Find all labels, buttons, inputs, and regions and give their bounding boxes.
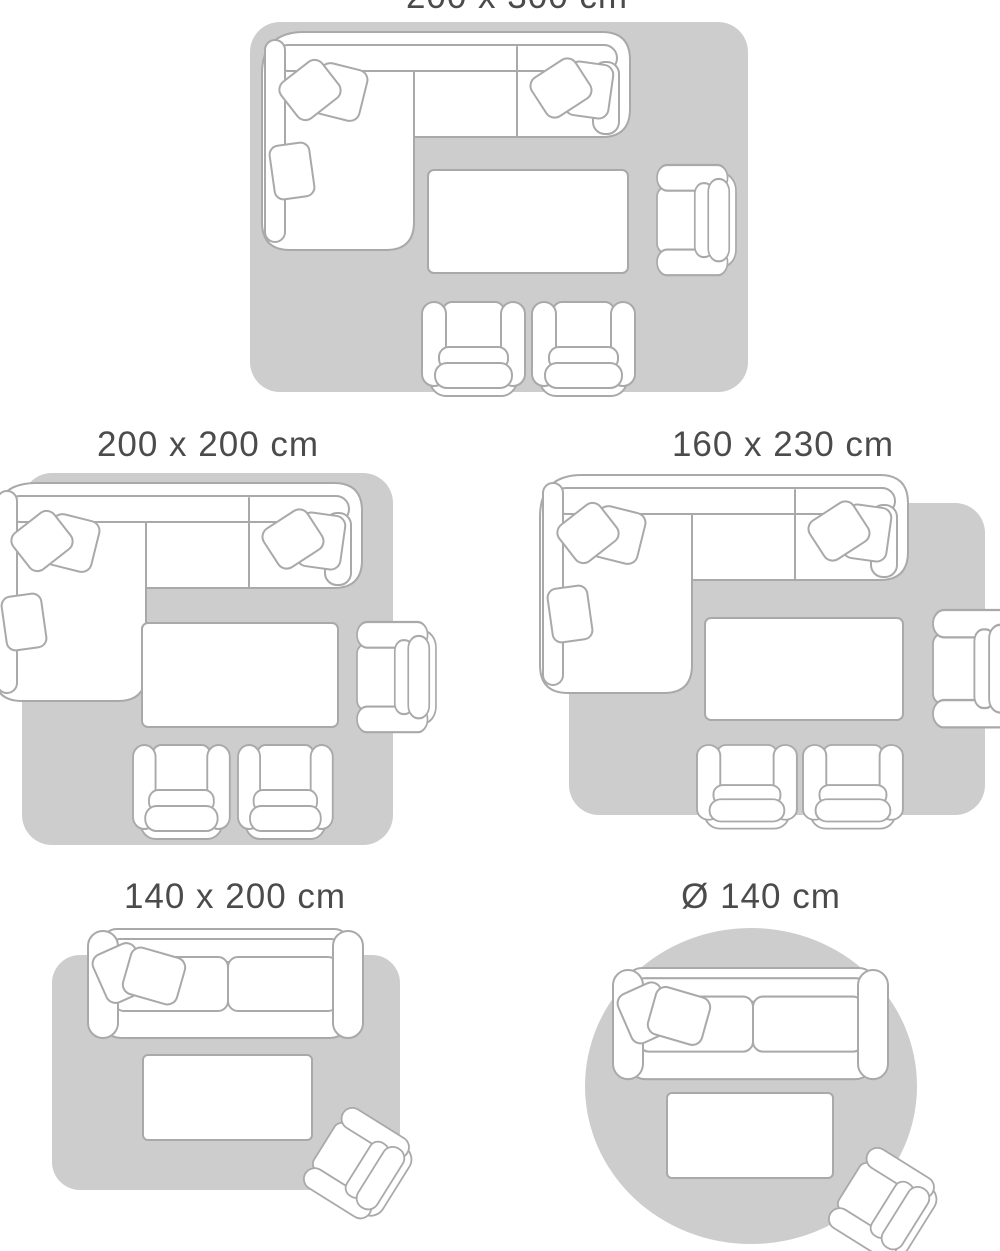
coffee-table bbox=[142, 623, 338, 727]
armchair bbox=[357, 622, 436, 732]
armchair bbox=[803, 745, 903, 829]
diagram-d140 bbox=[585, 928, 946, 1251]
armchair bbox=[133, 745, 230, 839]
armchair bbox=[933, 610, 1000, 727]
armchair bbox=[238, 745, 333, 839]
armchair bbox=[532, 302, 635, 396]
sofa bbox=[613, 968, 888, 1079]
coffee-table bbox=[428, 170, 628, 273]
diagram-200x200 bbox=[0, 473, 436, 845]
layout-illustrations bbox=[0, 0, 1000, 1251]
armchair bbox=[657, 165, 736, 275]
coffee-table bbox=[143, 1055, 312, 1140]
coffee-table bbox=[705, 618, 903, 720]
rug-size-guide: 200 x 300 cm 200 x 200 cm 160 x 230 cm 1… bbox=[0, 0, 1000, 1251]
armchair bbox=[697, 745, 797, 829]
sofa bbox=[88, 929, 363, 1038]
coffee-table bbox=[667, 1093, 833, 1178]
diagram-140x200 bbox=[52, 929, 421, 1227]
diagram-200x300 bbox=[250, 22, 748, 396]
diagram-160x230 bbox=[540, 475, 1000, 829]
armchair bbox=[422, 302, 525, 396]
